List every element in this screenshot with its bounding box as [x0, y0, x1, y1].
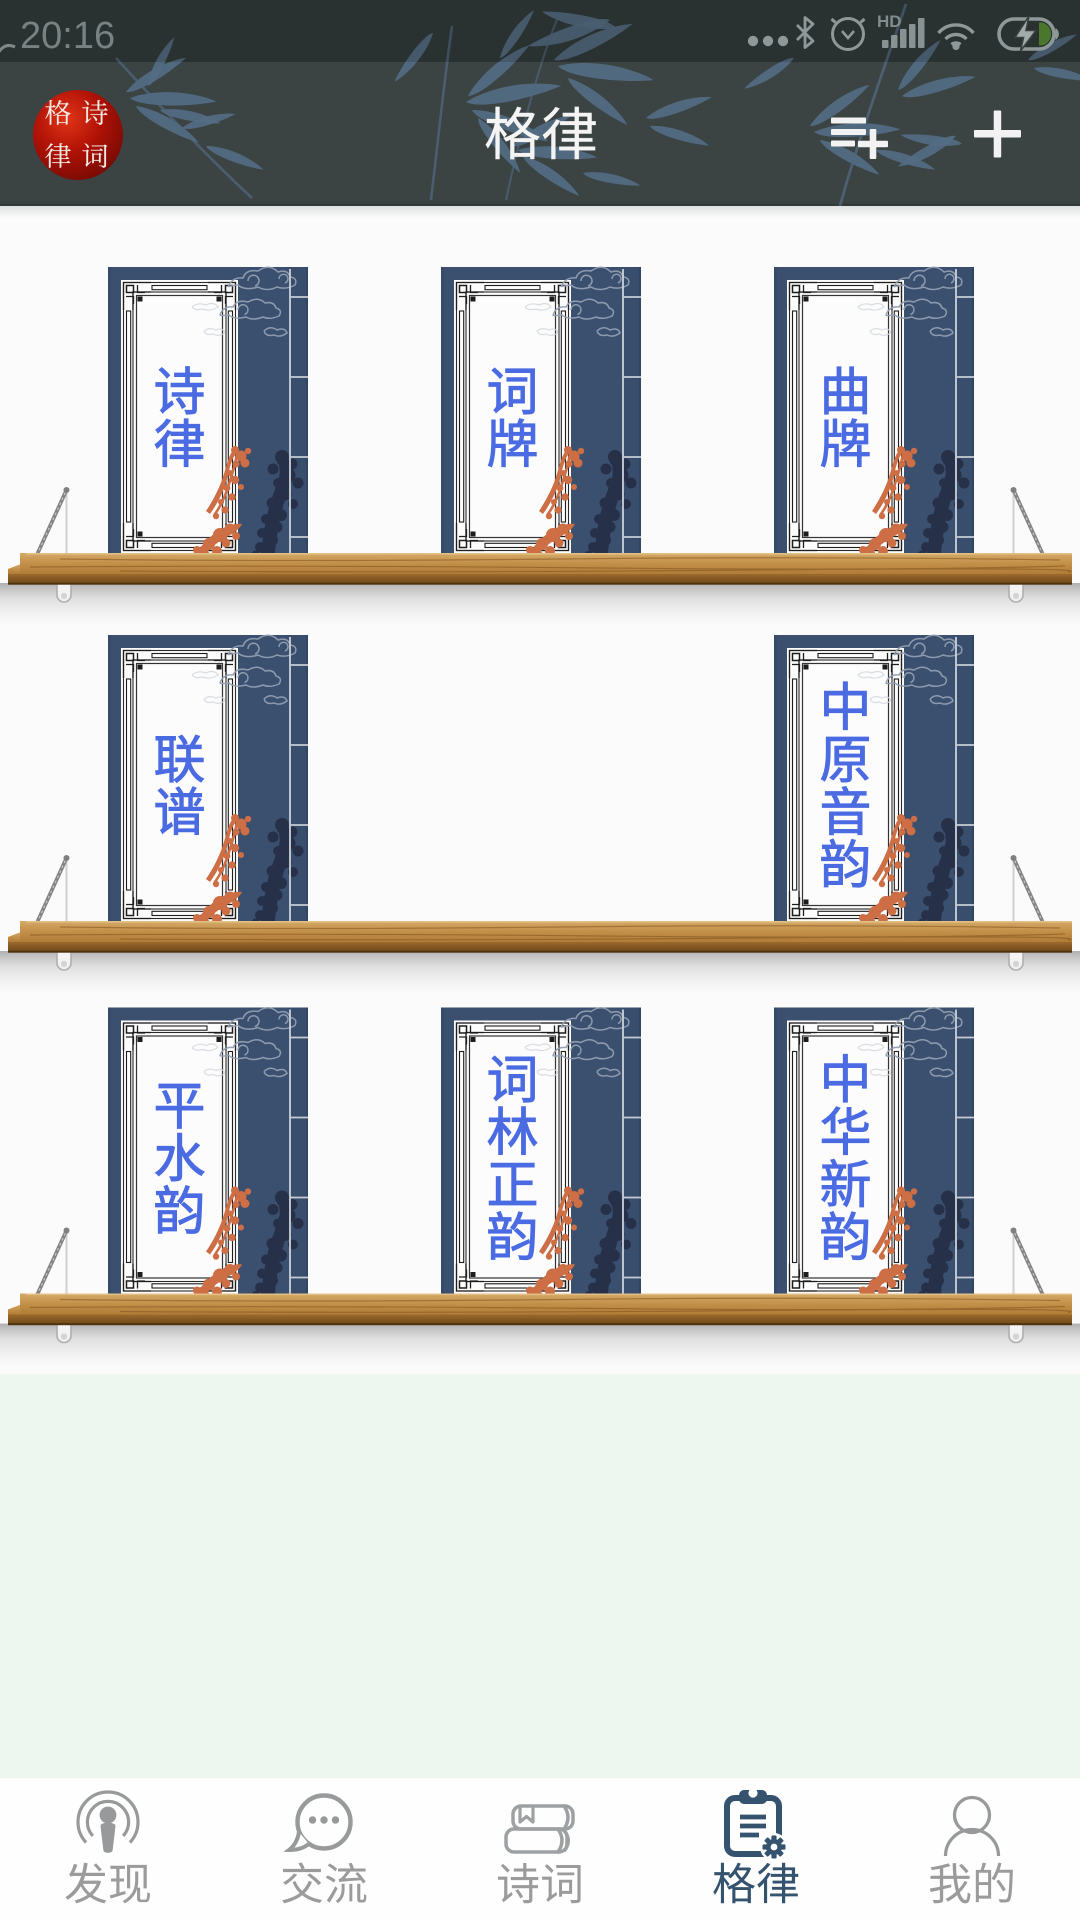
- svg-text:HD: HD: [877, 12, 902, 31]
- svg-text:20:16: 20:16: [20, 15, 115, 57]
